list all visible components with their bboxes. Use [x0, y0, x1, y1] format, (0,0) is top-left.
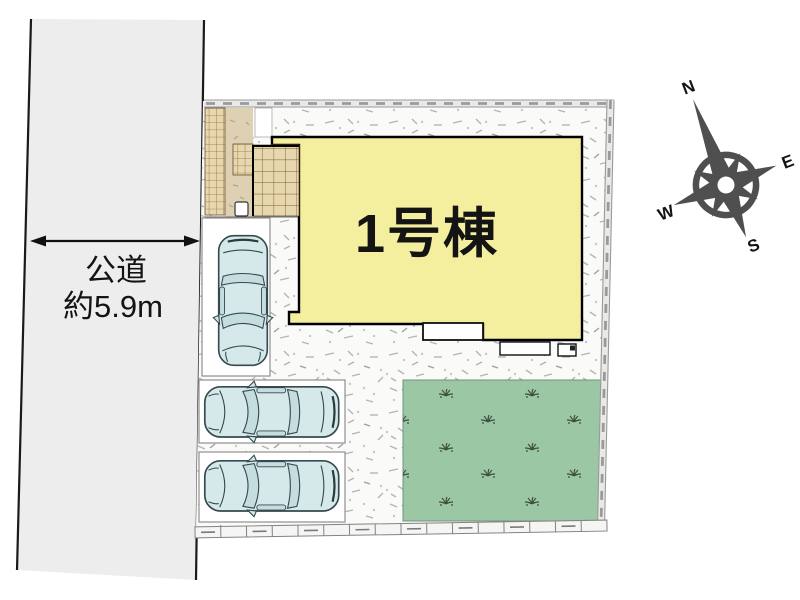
step-stone: [235, 202, 248, 216]
tile-walkway: [205, 108, 225, 215]
compass-rose: N E W S: [616, 53, 800, 283]
compass-label-s: S: [745, 235, 762, 257]
compass-label-w: W: [655, 201, 678, 225]
gate-area: [255, 108, 272, 137]
car-3: [205, 455, 339, 516]
building-1-label: 1号棟: [355, 204, 499, 264]
compass-label-e: E: [779, 151, 796, 173]
meter-box-dot: [570, 346, 575, 351]
lawn-area: [403, 380, 601, 521]
car-2: [205, 381, 339, 442]
tile-pad: [233, 144, 253, 175]
road-name-label: 公道: [85, 253, 147, 288]
back-step: [500, 342, 550, 355]
compass-label-n: N: [679, 76, 697, 98]
car-1: [213, 236, 272, 366]
lawn-texture: [403, 380, 601, 521]
entrance-step: [423, 323, 483, 340]
site-plan: 公道 約5.9m 1号棟 N E W S: [0, 0, 800, 600]
site-plan-canvas: 公道 約5.9m 1号棟 N E W S: [0, 0, 800, 600]
road-width-label: 約5.9m: [63, 289, 163, 324]
porch-tiles: [253, 145, 299, 216]
